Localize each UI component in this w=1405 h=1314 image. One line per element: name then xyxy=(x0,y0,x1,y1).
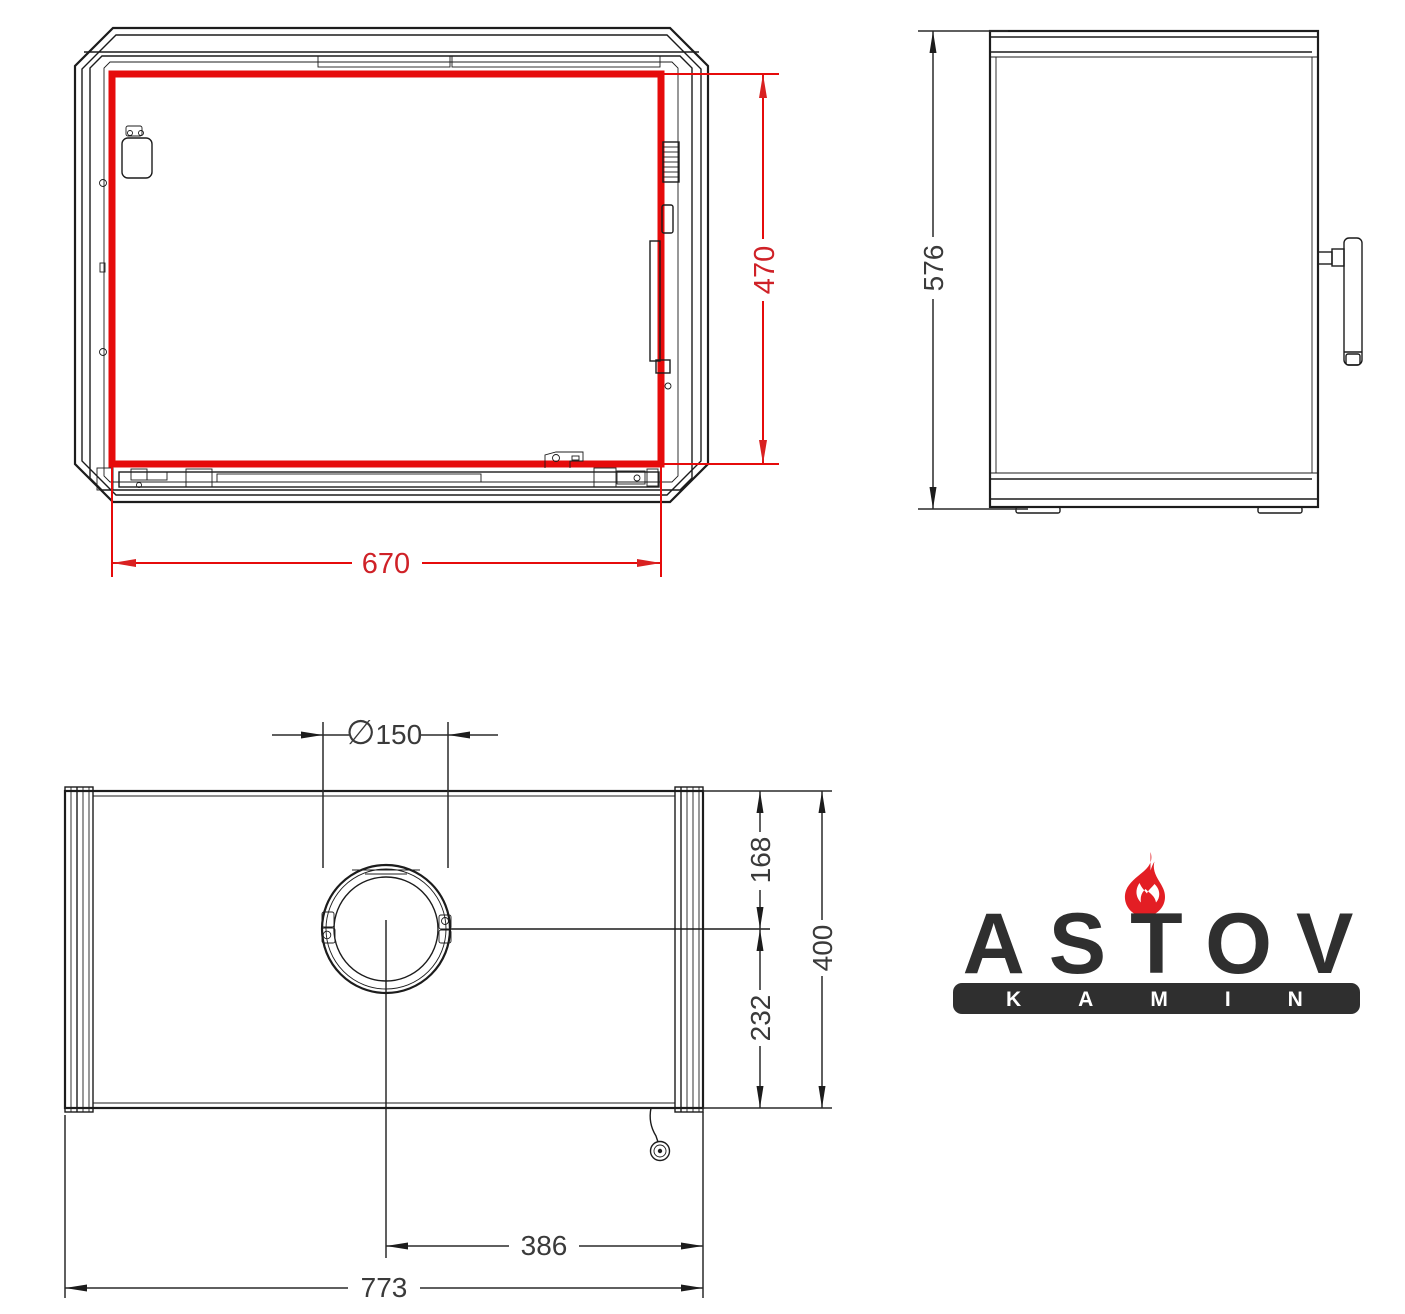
door-handle xyxy=(1318,238,1362,365)
brand-subname: KAMIN xyxy=(1006,988,1360,1011)
dim-door-glass-height: 470 xyxy=(663,74,781,464)
dim-overall-depth-label: 400 xyxy=(807,925,838,972)
front-door-outline xyxy=(90,56,692,490)
dim-door-glass-width: 670 xyxy=(112,466,661,580)
front-outer-frame-inner-line xyxy=(82,35,701,495)
dim-overall-width: 773 xyxy=(65,1115,703,1303)
dim-overall-width-label: 773 xyxy=(361,1272,408,1303)
front-door-inner-line xyxy=(104,62,678,482)
dim-flue-offset-back-label: 168 xyxy=(745,837,776,884)
damper-knob xyxy=(650,1108,669,1161)
dim-overall-height: 576 xyxy=(918,31,1028,509)
dim-flue-offset-right-label: 386 xyxy=(521,1230,568,1261)
side-body xyxy=(990,31,1318,507)
dim-flue-diameter-label: ∅150 xyxy=(346,714,422,752)
door-hinge-top-detail xyxy=(122,126,152,178)
front-view: 470 670 xyxy=(75,28,781,580)
dim-flue-offset-front-label: 232 xyxy=(745,995,776,1042)
front-outer-frame xyxy=(75,28,708,502)
front-glass-opening-highlight xyxy=(112,74,661,464)
technical-drawing-page: 470 670 xyxy=(0,0,1405,1314)
top-body xyxy=(65,791,703,1108)
dim-overall-height-label: 576 xyxy=(918,245,949,292)
dim-door-glass-height-label: 470 xyxy=(749,246,781,294)
side-view: 576 xyxy=(918,31,1362,513)
dim-door-glass-width-label: 670 xyxy=(362,548,410,580)
brand-name: ASTOV xyxy=(963,896,1378,992)
door-bottom-mechanism xyxy=(97,452,659,490)
dim-overall-depth: 400 xyxy=(807,791,838,1108)
top-back-edge-strip xyxy=(675,787,703,1112)
top-front-edge-strip xyxy=(65,787,93,1112)
brand-logo: ASTOV KAMIN xyxy=(953,852,1377,1014)
dim-flue-offset-front: 232 xyxy=(745,929,776,1108)
top-view: ∅150 168 232 400 xyxy=(65,714,838,1303)
door-frame-holes xyxy=(100,180,107,356)
dim-flue-offset-right: 386 xyxy=(386,1112,703,1298)
